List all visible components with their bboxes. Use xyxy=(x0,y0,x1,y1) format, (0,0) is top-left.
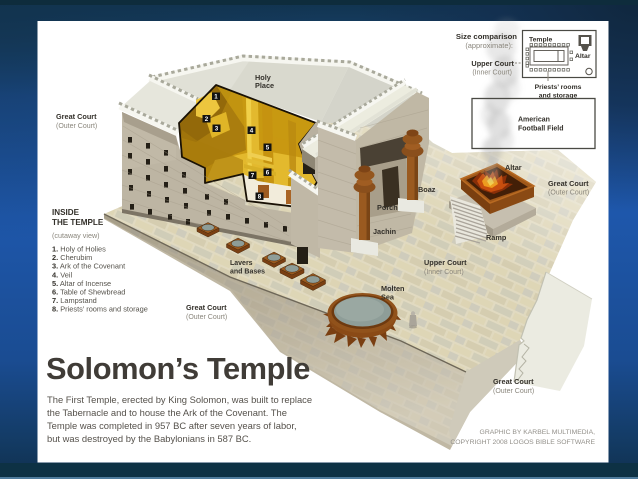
svg-text:Lavers: Lavers xyxy=(230,260,253,267)
svg-text:(approximate):: (approximate): xyxy=(465,41,513,50)
svg-text:Size comparison: Size comparison xyxy=(456,32,517,41)
svg-text:INSIDE: INSIDE xyxy=(52,208,80,217)
svg-text:8: 8 xyxy=(258,194,262,201)
svg-text:(Outer Court): (Outer Court) xyxy=(186,314,227,321)
svg-text:Altar: Altar xyxy=(575,53,591,60)
svg-text:Great Court: Great Court xyxy=(186,303,227,312)
svg-text:and Bases: and Bases xyxy=(230,269,265,276)
svg-text:(Inner Court): (Inner Court) xyxy=(424,269,464,276)
svg-text:Great Court: Great Court xyxy=(548,179,589,188)
svg-text:The First Temple, erected by K: The First Temple, erected by King Solomo… xyxy=(47,394,312,405)
svg-text:Porch: Porch xyxy=(377,203,398,212)
svg-text:COPYRIGHT 2008 LOGOS BIBLE SOF: COPYRIGHT 2008 LOGOS BIBLE SOFTWARE xyxy=(450,439,595,446)
svg-text:Altar: Altar xyxy=(505,163,522,172)
svg-text:4: 4 xyxy=(250,128,254,135)
svg-text:2: 2 xyxy=(205,116,209,123)
svg-text:Jachin: Jachin xyxy=(373,227,396,236)
svg-text:6: 6 xyxy=(266,170,270,177)
svg-text:7: 7 xyxy=(251,173,255,180)
svg-text:Great Court: Great Court xyxy=(56,112,97,121)
svg-text:THE TEMPLE: THE TEMPLE xyxy=(52,218,104,227)
svg-text:(cutaway view): (cutaway view) xyxy=(52,231,100,240)
svg-text:Solomon’s Temple: Solomon’s Temple xyxy=(46,351,310,386)
svg-text:1: 1 xyxy=(214,94,218,101)
svg-text:5: 5 xyxy=(266,145,270,152)
svg-text:Temple was completed in 957 BC: Temple was completed in 957 BC after sev… xyxy=(47,420,297,431)
svg-text:Place: Place xyxy=(255,81,274,90)
svg-text:Upper Court: Upper Court xyxy=(424,258,467,267)
svg-text:Ramp: Ramp xyxy=(486,233,507,242)
svg-text:(Outer Court): (Outer Court) xyxy=(548,190,589,197)
svg-text:Boaz: Boaz xyxy=(418,185,436,194)
svg-text:3: 3 xyxy=(215,126,219,133)
svg-text:Great Court: Great Court xyxy=(493,377,534,386)
svg-text:(Inner Court): (Inner Court) xyxy=(472,70,512,77)
svg-text:(Outer Court): (Outer Court) xyxy=(493,388,534,395)
svg-text:Upper Court: Upper Court xyxy=(471,59,514,68)
svg-text:(Outer Court): (Outer Court) xyxy=(56,123,97,130)
svg-text:GRAPHIC BY KARBEL MULTIMEDIA,: GRAPHIC BY KARBEL MULTIMEDIA, xyxy=(480,429,596,436)
svg-text:8. Priests’ rooms and storage: 8. Priests’ rooms and storage xyxy=(52,305,148,314)
svg-text:Sea: Sea xyxy=(381,293,395,302)
svg-text:Football Field: Football Field xyxy=(518,126,564,133)
svg-text:but was destroyed by the Babyl: but was destroyed by the Babylonians in … xyxy=(47,433,251,444)
svg-text:Temple: Temple xyxy=(529,37,553,44)
svg-text:Priests’ rooms: Priests’ rooms xyxy=(535,84,582,91)
svg-text:American: American xyxy=(518,117,550,124)
svg-text:the Tabernacle and to house th: the Tabernacle and to house the Ark of t… xyxy=(47,407,287,418)
